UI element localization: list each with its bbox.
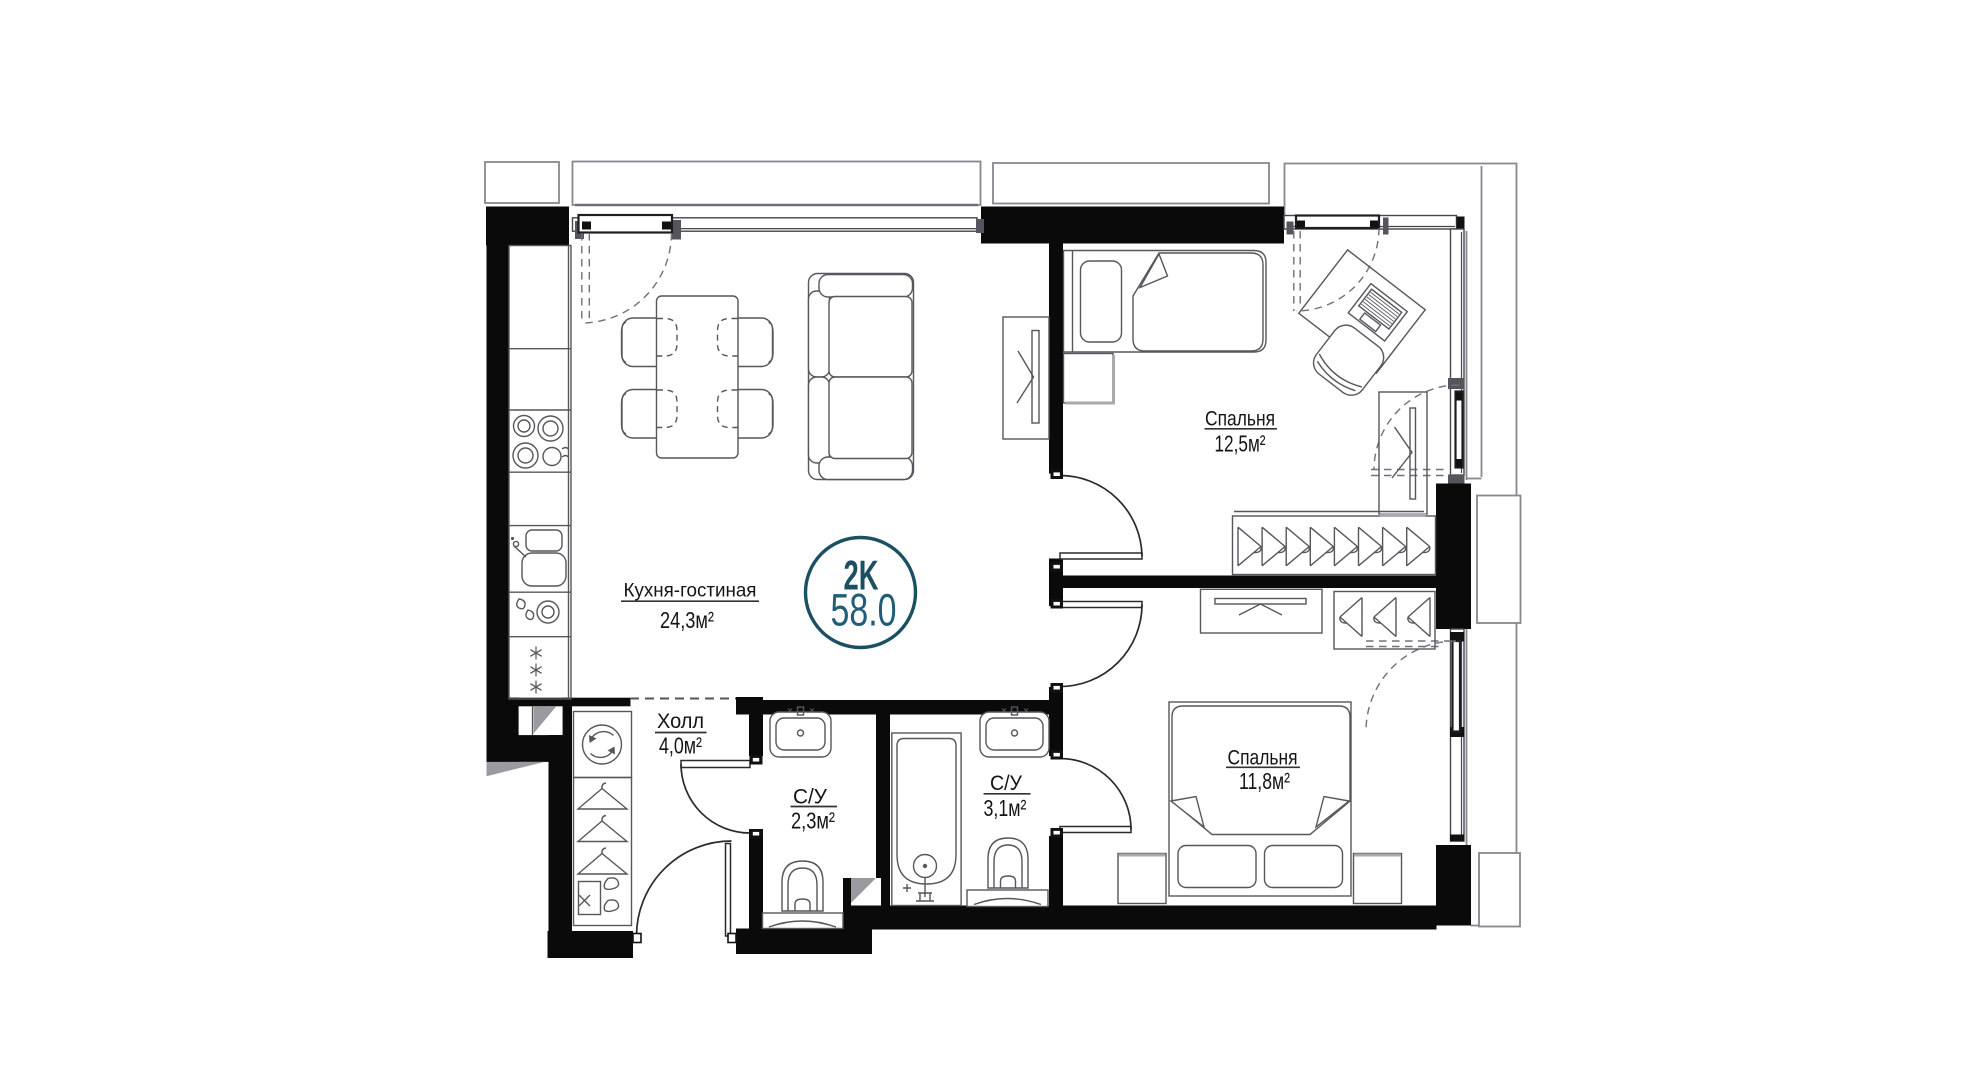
svg-text:24,3м²: 24,3м² bbox=[660, 607, 714, 633]
svg-text:С/У: С/У bbox=[793, 785, 827, 809]
svg-text:Холл: Холл bbox=[657, 709, 704, 733]
svg-text:С/У: С/У bbox=[990, 771, 1022, 795]
svg-text:2,3м²: 2,3м² bbox=[791, 808, 835, 834]
svg-text:3,1м²: 3,1м² bbox=[984, 795, 1027, 821]
svg-text:Спальня: Спальня bbox=[1228, 746, 1298, 770]
svg-text:58.0: 58.0 bbox=[831, 585, 897, 636]
svg-text:Спальня: Спальня bbox=[1205, 407, 1275, 431]
svg-text:4,0м²: 4,0м² bbox=[659, 733, 702, 759]
svg-text:12,5м²: 12,5м² bbox=[1215, 431, 1266, 457]
svg-text:Кухня-гостиная: Кухня-гостиная bbox=[624, 580, 757, 602]
svg-text:11,8м²: 11,8м² bbox=[1239, 768, 1290, 794]
